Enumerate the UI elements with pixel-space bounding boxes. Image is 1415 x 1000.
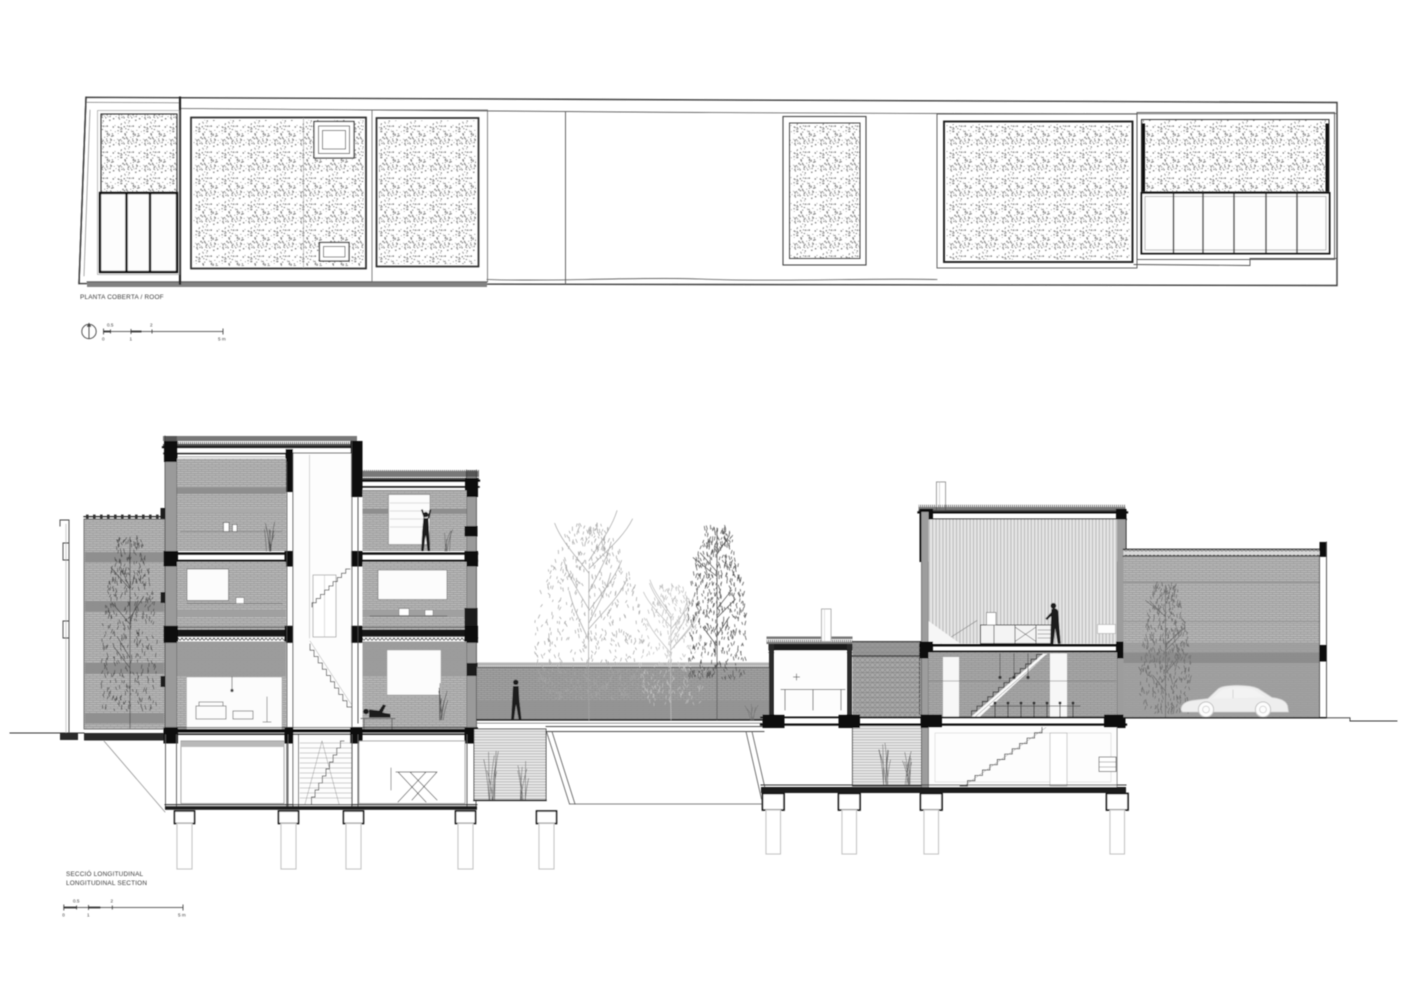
svg-text:0: 0 [62, 913, 65, 918]
svg-text:5 m: 5 m [218, 337, 226, 342]
svg-text:2: 2 [150, 323, 153, 328]
svg-text:0.5: 0.5 [107, 323, 114, 328]
svg-text:PLANTA COBERTA / ROOF: PLANTA COBERTA / ROOF [80, 294, 164, 301]
svg-text:SECCIÓ LONGITUDINAL: SECCIÓ LONGITUDINAL [66, 869, 144, 878]
svg-text:LONGITUDINAL SECTION: LONGITUDINAL SECTION [66, 880, 147, 887]
svg-text:0: 0 [102, 337, 105, 342]
svg-text:5 m: 5 m [178, 913, 186, 918]
svg-text:1: 1 [130, 337, 133, 342]
svg-text:0.5: 0.5 [73, 899, 80, 904]
svg-text:2: 2 [111, 899, 114, 904]
svg-text:1: 1 [87, 913, 90, 918]
